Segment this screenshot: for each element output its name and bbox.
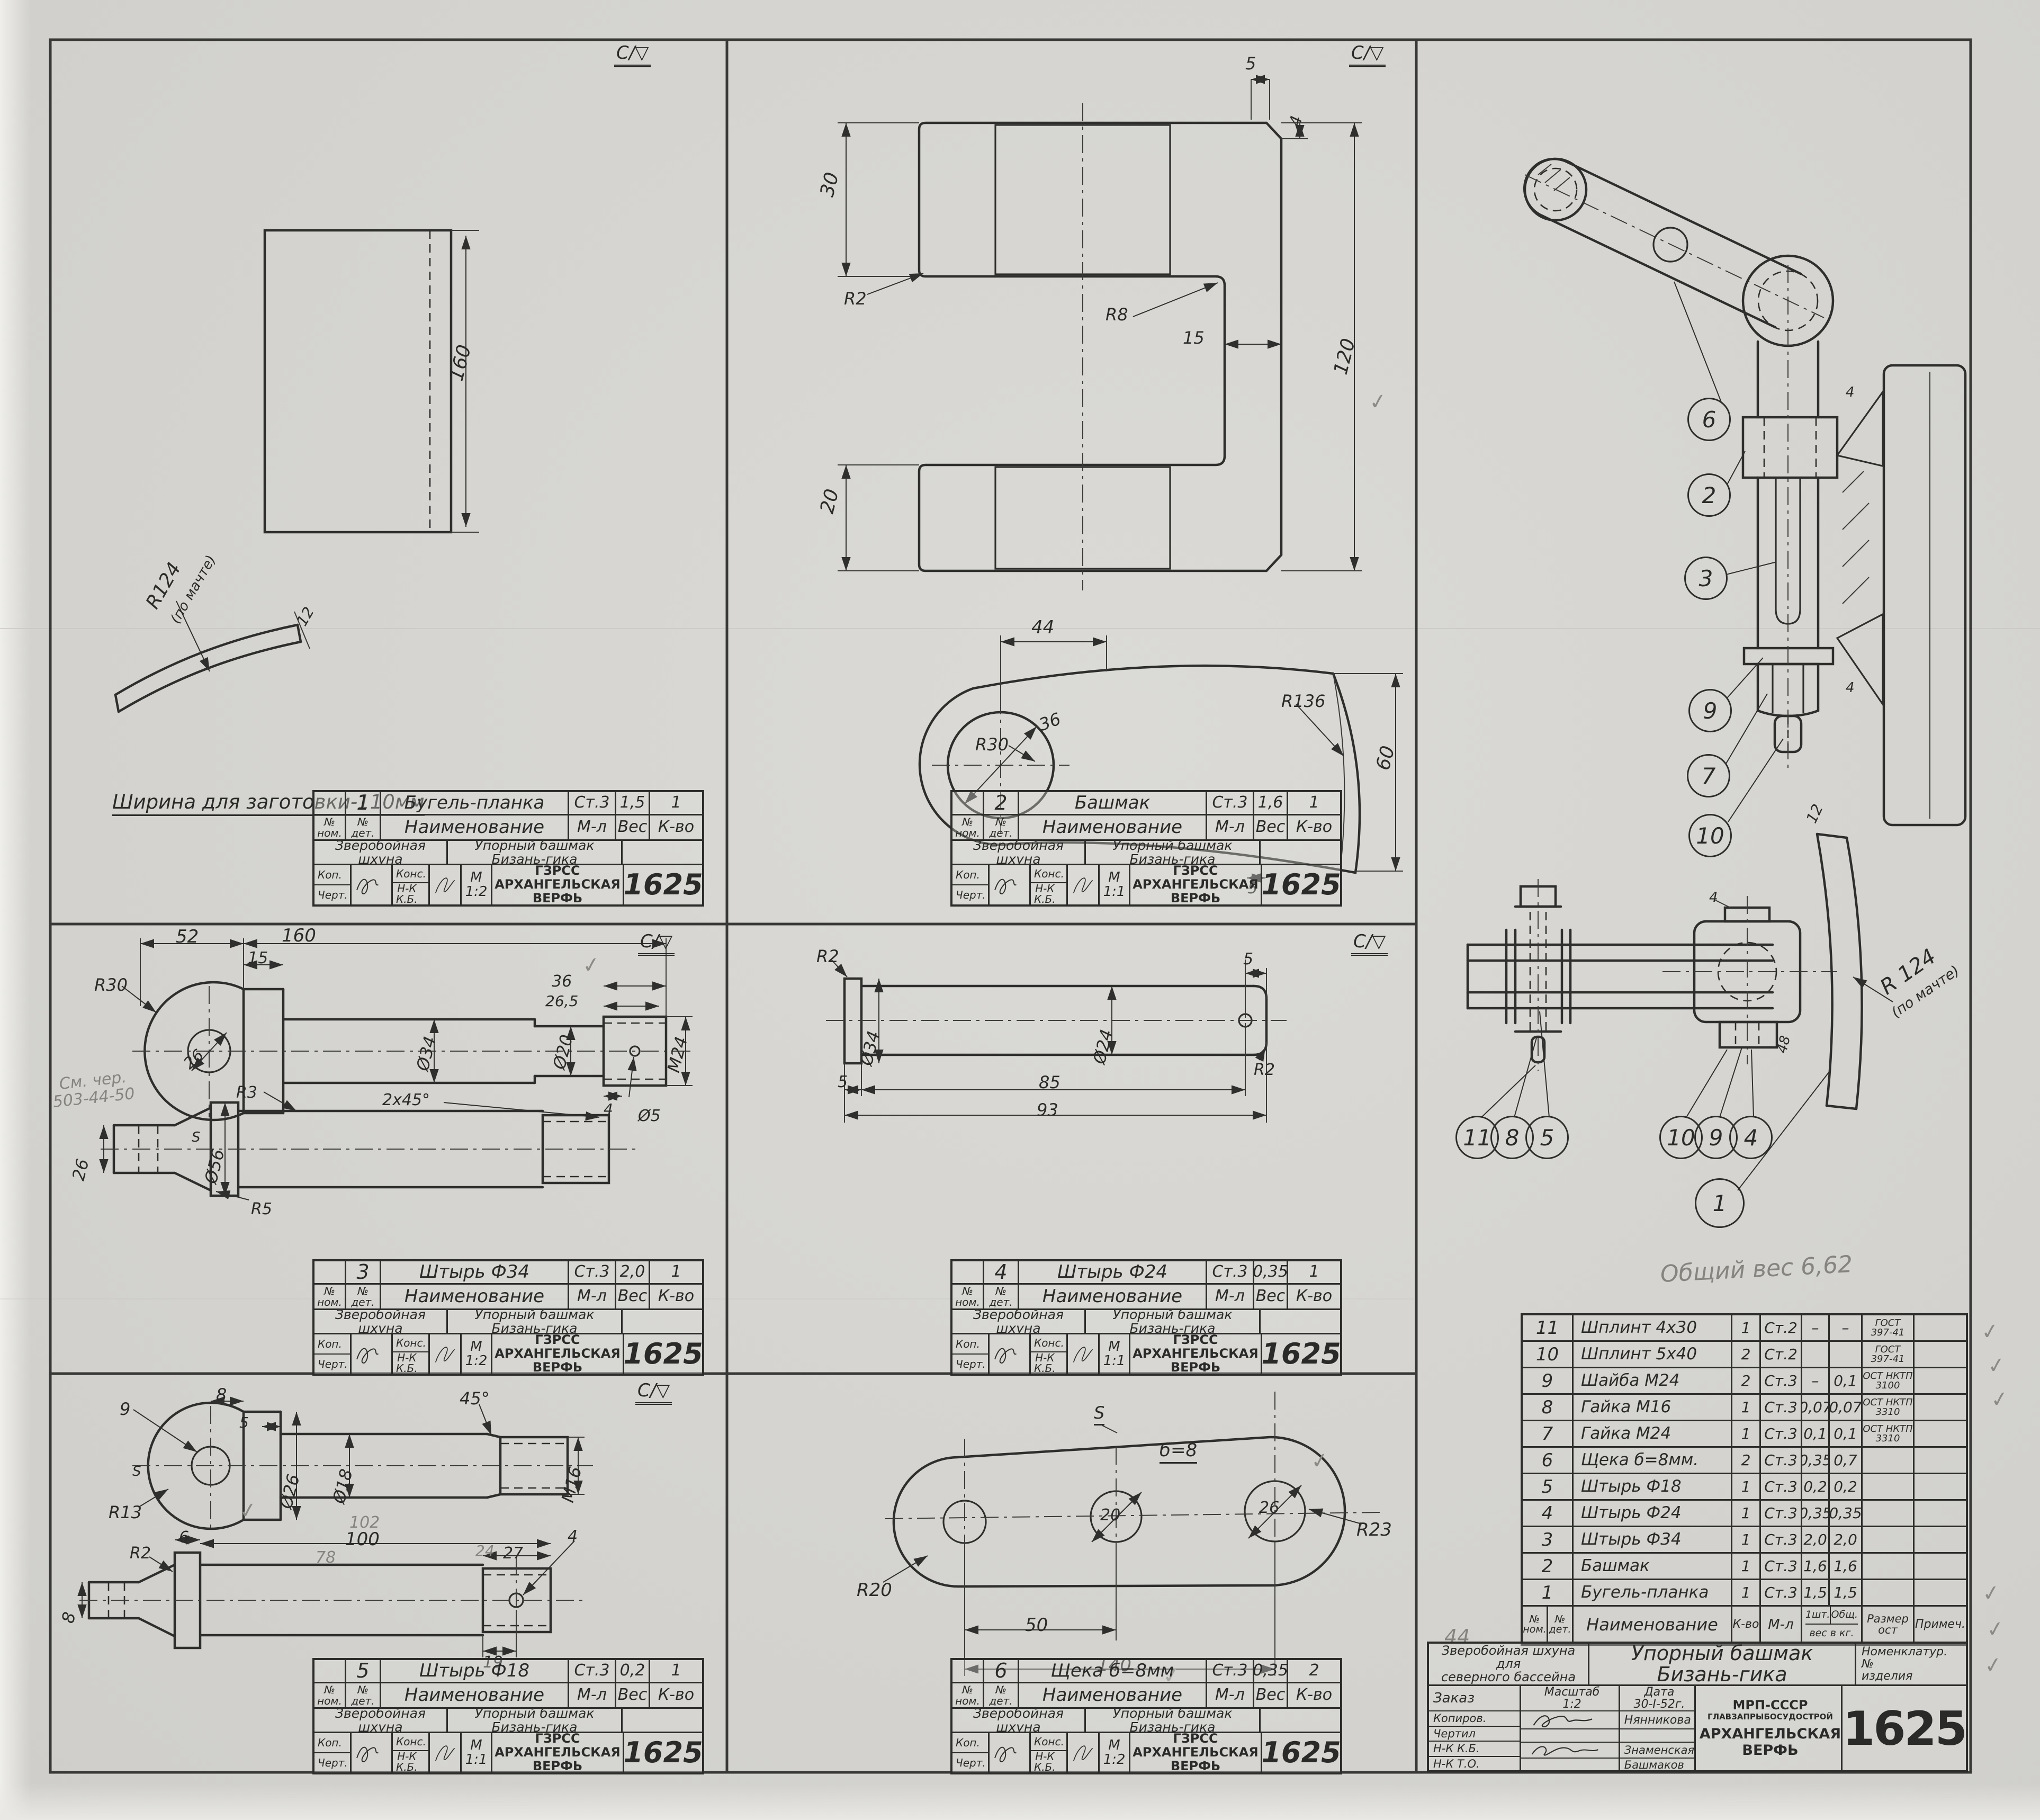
- part-name: Штырь Ф24: [1574, 1501, 1732, 1527]
- part-material: Ст.3: [1761, 1580, 1802, 1607]
- part-number: 6: [1523, 1448, 1574, 1474]
- part-number: 4: [1523, 1501, 1574, 1527]
- tb-part-number: 2: [984, 792, 1019, 815]
- kopir-signature: [1521, 1711, 1619, 1729]
- pencil-checkmark: ✓: [1986, 1352, 2007, 1379]
- part-qty: 2: [1732, 1342, 1761, 1368]
- dimension-label: R5: [251, 1201, 272, 1218]
- tb-scale: М1:1: [1100, 865, 1130, 904]
- surface-finish-mark: С/▽: [614, 42, 651, 67]
- tb-scale: М1:2: [462, 865, 492, 904]
- dimension-label: 50: [1025, 1616, 1048, 1635]
- tb-col-mat: М-л: [569, 1683, 616, 1709]
- tb-weight: 2,0: [616, 1261, 650, 1285]
- tb-firm: ГЗРСС АРХАНГЕЛЬСКАЯ ВЕРФЬ: [1130, 1334, 1262, 1374]
- tb-qty: 1: [650, 1660, 702, 1683]
- tb-col-num: № ном.: [952, 815, 984, 841]
- tb-col-det: № дет.: [984, 1683, 1019, 1709]
- nkkb-name: Знаменская: [1620, 1743, 1694, 1759]
- part-material: Ст.2: [1761, 1315, 1802, 1342]
- part-number: 7: [1523, 1421, 1574, 1448]
- tb-qty: 1: [1288, 792, 1340, 815]
- dimension-label: 4: [1846, 681, 1855, 695]
- part-weight-each: –: [1802, 1315, 1830, 1342]
- header-w2: Общ.: [1831, 1607, 1858, 1625]
- tb-scale: М1:2: [462, 1334, 492, 1374]
- panel-3-titleblock: 3 Штырь Ф34Ст.3 2,01 № ном.№ дет. Наимен…: [312, 1259, 704, 1376]
- part-number: 1: [1523, 1580, 1574, 1607]
- tb-col-det: № дет.: [984, 815, 1019, 841]
- tb-drawing-number: 1625: [624, 1334, 702, 1374]
- tb-blank: [952, 1660, 984, 1683]
- part-number: 11: [1523, 1315, 1574, 1342]
- tb-project: Зверобойная шхуна: [952, 1310, 1086, 1334]
- tb-blank2: [1261, 1709, 1340, 1733]
- tb-project: Зверобойная шхуна: [314, 1310, 448, 1334]
- part-note: [1915, 1554, 1966, 1580]
- parts-row-2: 2 Башмак 1 Ст.3 1,6 1,6: [1523, 1554, 1966, 1580]
- part-material: Ст.3: [1761, 1448, 1802, 1474]
- dimension-label: R2: [130, 1545, 151, 1562]
- part-number: 10: [1523, 1342, 1574, 1368]
- panel6-scheka-drawing: [883, 1392, 1381, 1676]
- balloon-10: 10: [1688, 814, 1732, 857]
- ministry-text: МРП-СССР: [1732, 1698, 1808, 1713]
- tb-drawing-number: 1625: [624, 865, 702, 904]
- dimension-label: 20: [1100, 1507, 1120, 1524]
- part-note: [1915, 1580, 1966, 1607]
- header-note: Примеч.: [1915, 1607, 1966, 1644]
- dimension-label: 100: [345, 1530, 380, 1549]
- header-weight-group: 1шт.Общ. вес в кг.: [1802, 1607, 1863, 1644]
- dimension-label: 85: [1039, 1074, 1061, 1092]
- part-standard: [1863, 1580, 1915, 1607]
- dimension-label: 5: [239, 1415, 249, 1430]
- dimension-label: R23: [1356, 1521, 1392, 1540]
- tb-part-number: 1: [346, 792, 381, 815]
- chertil-label: Чертил: [1429, 1727, 1520, 1742]
- tb-col-name: Наименование: [381, 1683, 569, 1709]
- tb-drawing-number: 1625: [1262, 1334, 1340, 1374]
- tb-col-qty: К-во: [650, 815, 702, 841]
- part-qty: 1: [1732, 1474, 1761, 1501]
- part-material: Ст.2: [1761, 1342, 1802, 1368]
- part-weight-each: 0,2: [1802, 1474, 1830, 1501]
- part-number: 8: [1523, 1395, 1574, 1421]
- main-tb-names: Дата 30-I-52г. Нянникова Знаменская Башм…: [1620, 1686, 1696, 1771]
- dimension-label: R30: [975, 736, 1009, 754]
- part-note: [1915, 1527, 1966, 1554]
- part-name: Гайка М16: [1574, 1395, 1732, 1421]
- tb-scale: М1:2: [1100, 1733, 1130, 1772]
- tb-col-weight: Вес: [616, 1285, 650, 1310]
- tb-material: Ст.3: [1207, 792, 1254, 815]
- scale-value: 1:2: [1562, 1698, 1581, 1710]
- dimension-label: 9: [120, 1401, 130, 1419]
- tb-weight: 0,35: [1254, 1660, 1288, 1683]
- pencil-checkmark: ✓: [1368, 389, 1389, 415]
- tb-material: Ст.3: [569, 1660, 616, 1683]
- part-qty: 2: [1732, 1448, 1761, 1474]
- tb-signature-kop: [990, 865, 1031, 904]
- tb-signature-nk: [430, 1733, 462, 1772]
- header-name: Наименование: [1574, 1607, 1732, 1644]
- parts-row-9: 9 Шайба М24 2 Ст.3 – 0,1 ОСТ НКТП 3100: [1523, 1368, 1966, 1395]
- tb-kop-chert: Коп.Черт.: [314, 1733, 352, 1772]
- tb-col-name: Наименование: [1019, 815, 1207, 841]
- part-weight-total: 1,5: [1830, 1580, 1863, 1607]
- order-label: Заказ: [1429, 1686, 1520, 1711]
- dimension-label: R8: [1106, 306, 1128, 324]
- part-standard: ОСТ НКТП 3100: [1863, 1368, 1915, 1395]
- tb-subject: Упорный башмак Бизань-гика: [448, 841, 623, 865]
- dimension-label: R2: [844, 290, 867, 308]
- tb-col-num: № ном.: [952, 1683, 984, 1709]
- dimension-label: 15: [1183, 329, 1205, 347]
- tb-kons-nk: Конс.Н-К К.Б.: [1031, 1334, 1068, 1374]
- pencil-note: 24: [475, 1543, 495, 1558]
- balloon-7: 7: [1687, 754, 1730, 797]
- glavk-text: ГЛАВЗАПРЫБОСУДОСТРОЙ: [1708, 1713, 1833, 1722]
- panel-5-titleblock: 5 Штырь Ф18Ст.3 0,21 № ном.№ дет. Наимен…: [312, 1658, 704, 1774]
- tb-kons-nk: Конс.Н-К К.Б.: [393, 865, 430, 904]
- tb-subject: Упорный башмак Бизань-гика: [1086, 1310, 1261, 1334]
- panel-4-titleblock: 4 Штырь Ф24Ст.3 0,351 № ном.№ дет. Наиме…: [950, 1259, 1342, 1376]
- tb-part-number: 5: [346, 1660, 381, 1683]
- part-note: [1915, 1368, 1966, 1395]
- panel2-bashmak-drawing: [838, 79, 1403, 878]
- nkkb-label: Н-К К.Б.: [1429, 1742, 1520, 1757]
- dimension-label: 160: [282, 927, 316, 946]
- tb-project: Зверобойная шхуна: [314, 1709, 448, 1733]
- kopir-label: Копиров.: [1429, 1711, 1520, 1727]
- surface-finish-mark: С/▽: [1351, 931, 1388, 956]
- tb-col-qty: К-во: [1288, 815, 1340, 841]
- dimension-label: 44: [1031, 618, 1054, 638]
- part-number: 5: [1523, 1474, 1574, 1501]
- part-standard: [1863, 1501, 1915, 1527]
- part-qty: 1: [1732, 1527, 1761, 1554]
- dimension-label: 6: [179, 1529, 189, 1546]
- dimension-label: R2: [816, 948, 839, 966]
- tb-col-weight: Вес: [1254, 1683, 1288, 1709]
- pencil-checkmark: ✓: [1309, 1448, 1331, 1474]
- tb-blank2: [1261, 1310, 1340, 1334]
- part-qty: 1: [1732, 1501, 1761, 1527]
- tb-col-name: Наименование: [381, 815, 569, 841]
- tb-weight: 1,5: [616, 792, 650, 815]
- shipyard-text-2: ВЕРФЬ: [1742, 1742, 1798, 1759]
- part-qty: 1: [1732, 1421, 1761, 1448]
- part-weight-total: 0,2: [1830, 1474, 1863, 1501]
- tb-signature-nk: [1068, 865, 1100, 904]
- part-standard: [1863, 1527, 1915, 1554]
- dimension-label: R13: [109, 1504, 142, 1522]
- tb-col-name: Наименование: [1019, 1683, 1207, 1709]
- tb-blank: [314, 792, 346, 815]
- dimension-label: R136: [1281, 693, 1325, 711]
- tb-col-num: № ном.: [952, 1285, 984, 1310]
- shipyard-logo: [1696, 1697, 1696, 1760]
- pencil-checkmark: ✓: [1985, 1616, 2006, 1643]
- part-name: Шайба М24: [1574, 1368, 1732, 1395]
- panel-6-titleblock: 6 Щека б=8ммСт.3 0,352 № ном.№ дет. Наим…: [950, 1658, 1342, 1774]
- part-weight-total: 0,1: [1830, 1421, 1863, 1448]
- tb-part-name: Штырь Ф34: [381, 1261, 569, 1285]
- tb-drawing-number: 1625: [624, 1733, 702, 1772]
- parts-row-7: 7 Гайка М24 1 Ст.3 0,1 0,1 ОСТ НКТП 3310: [1523, 1421, 1966, 1448]
- tb-part-number: 4: [984, 1261, 1019, 1285]
- dimension-label: 27: [503, 1545, 523, 1562]
- header-mat: М-л: [1761, 1607, 1802, 1644]
- part-name: Шплинт 5х40: [1574, 1342, 1732, 1368]
- tb-signature-kop: [990, 1334, 1031, 1374]
- part-weight-total: 0,07: [1830, 1395, 1863, 1421]
- drawing-number: 1625: [1843, 1701, 1966, 1756]
- scale-label: Масштаб: [1544, 1686, 1600, 1698]
- part-weight-total: 0,7: [1830, 1448, 1863, 1474]
- part-material: Ст.3: [1761, 1527, 1802, 1554]
- tb-kons-nk: Конс.Н-К К.Б.: [393, 1334, 430, 1374]
- tb-subject: Упорный башмак Бизань-гика: [1086, 1709, 1261, 1733]
- part-standard: [1863, 1474, 1915, 1501]
- part-weight-each: –: [1802, 1368, 1830, 1395]
- parts-row-3: 3 Штырь Ф34 1 Ст.3 2,0 2,0: [1523, 1527, 1966, 1554]
- tb-kop-chert: Коп.Черт.: [952, 865, 990, 904]
- tb-signature-nk: [1068, 1733, 1100, 1772]
- tb-col-det: № дет.: [984, 1285, 1019, 1310]
- part-material: Ст.3: [1761, 1554, 1802, 1580]
- part-standard: ОСТ НКТП 3310: [1863, 1421, 1915, 1448]
- assembly-upper-drawing: [1524, 159, 1965, 825]
- header-qty: К-во: [1732, 1607, 1761, 1644]
- tb-kons-nk: Конс.Н-К К.Б.: [393, 1733, 430, 1772]
- dimension-label: 5: [1243, 951, 1253, 968]
- dimension-label: 52: [176, 928, 199, 947]
- panel-1-titleblock: 1 Бугель-планкаСт.3 1,51 № ном.№ дет. На…: [312, 790, 704, 907]
- part-note: [1915, 1448, 1966, 1474]
- part-number: 9: [1523, 1368, 1574, 1395]
- part-weight-total: 2,0: [1830, 1527, 1863, 1554]
- parts-header-row: № ном. № дет. Наименование К-во М-л 1шт.…: [1523, 1607, 1966, 1644]
- pencil-checkmark: ✓: [1983, 1652, 2004, 1679]
- dimension-label: 26,5: [545, 993, 578, 1009]
- part-standard: ГОСТ 397-41: [1863, 1315, 1915, 1342]
- tb-project: Зверобойная шхуна: [952, 1709, 1086, 1733]
- part-number: 3: [1523, 1527, 1574, 1554]
- part-weight-each: 2,0: [1802, 1527, 1830, 1554]
- tb-part-number: 6: [984, 1660, 1019, 1683]
- part-name: Штырь Ф34: [1574, 1527, 1732, 1554]
- main-tb-nomenclature: Номенклатур. № изделия: [1856, 1644, 1966, 1684]
- tb-qty: 1: [650, 1261, 702, 1285]
- tb-blank: [314, 1660, 346, 1683]
- part-note: [1915, 1395, 1966, 1421]
- tb-firm: ГЗРСС АРХАНГЕЛЬСКАЯ ВЕРФЬ: [1130, 1733, 1262, 1772]
- tb-signature-nk: [430, 1334, 462, 1374]
- dimension-label: 4: [604, 1101, 613, 1117]
- tb-col-det: № дет.: [346, 815, 381, 841]
- dimension-label: б=8: [1160, 1441, 1197, 1464]
- parts-list-table: 11 Шплинт 4х30 1 Ст.2 – – ГОСТ 397-41 10…: [1521, 1313, 1968, 1646]
- main-tb-project: Зверобойная шхуна для северного бассейна: [1429, 1644, 1589, 1684]
- dimension-label: 36: [552, 973, 572, 990]
- tb-col-qty: К-во: [650, 1285, 702, 1310]
- nkto-label: Н-К Т.О.: [1429, 1757, 1520, 1771]
- main-tb-subject: Упорный башмак Бизань-гика: [1589, 1644, 1856, 1684]
- pencil-checkmark: ✓: [1981, 1580, 2002, 1607]
- tb-col-mat: М-л: [1207, 815, 1254, 841]
- tb-kons-nk: Конс.Н-К К.Б.: [1031, 865, 1068, 904]
- tb-col-num: № ном.: [314, 1285, 346, 1310]
- part-qty: 2: [1732, 1368, 1761, 1395]
- part-weight-total: 0,35: [1830, 1501, 1863, 1527]
- dimension-label: R30: [94, 976, 128, 994]
- part-material: Ст.3: [1761, 1395, 1802, 1421]
- dimension-label: 26: [1259, 1500, 1279, 1517]
- part-number: 2: [1523, 1554, 1574, 1580]
- header-w-sub: вес в кг.: [1809, 1625, 1854, 1643]
- tb-col-name: Наименование: [1019, 1285, 1207, 1310]
- tb-part-name: Щека б=8мм: [1019, 1660, 1207, 1683]
- parts-row-1: 1 Бугель-планка 1 Ст.3 1,5 1,5: [1523, 1580, 1966, 1607]
- header-no-nom: № ном.: [1523, 1607, 1548, 1644]
- balloon-1: 1: [1695, 1178, 1745, 1228]
- pencil-note: 78: [316, 1549, 336, 1566]
- part-name: Щека б=8мм.: [1574, 1448, 1732, 1474]
- surface-finish-mark: С/▽: [635, 1380, 672, 1405]
- pencil-checkmark: ✓: [1980, 1319, 2001, 1345]
- tb-subject: Упорный башмак Бизань-гика: [448, 1310, 623, 1334]
- tb-firm: ГЗРСС АРХАНГЕЛЬСКАЯ ВЕРФЬ: [492, 1733, 624, 1772]
- parts-row-8: 8 Гайка М16 1 Ст.3 0,07 0,07 ОСТ НКТП 33…: [1523, 1395, 1966, 1421]
- parts-row-5: 5 Штырь Ф18 1 Ст.3 0,2 0,2: [1523, 1474, 1966, 1501]
- panel4-shtyr24-drawing: [826, 960, 1287, 1123]
- tb-blank: [952, 792, 984, 815]
- balloon-5: 5: [1525, 1116, 1569, 1159]
- tb-weight: 0,35: [1254, 1261, 1288, 1285]
- part-name: Бугель-планка: [1574, 1580, 1732, 1607]
- part-note: [1915, 1501, 1966, 1527]
- parts-row-4: 4 Штырь Ф24 1 Ст.3 0,35 0,35: [1523, 1501, 1966, 1527]
- kopir-name: Нянникова: [1620, 1711, 1694, 1729]
- nkkb-signature: [1521, 1743, 1619, 1759]
- tb-kop-chert: Коп.Черт.: [314, 1334, 352, 1374]
- part-weight-each: 1,6: [1802, 1554, 1830, 1580]
- tb-weight: 0,2: [616, 1660, 650, 1683]
- balloon-3: 3: [1684, 557, 1728, 600]
- dimension-label: 45°: [460, 1390, 490, 1408]
- tb-project: Зверобойная шхуна: [314, 841, 448, 865]
- tb-project: Зверобойная шхуна: [952, 841, 1086, 865]
- header-w1: 1шт.: [1805, 1607, 1831, 1625]
- tb-kop-chert: Коп.Черт.: [314, 865, 352, 904]
- tb-col-weight: Вес: [616, 815, 650, 841]
- part-qty: 1: [1732, 1580, 1761, 1607]
- dimension-label: 5: [838, 1074, 848, 1091]
- part-note: [1915, 1342, 1966, 1368]
- dimension-label: 4: [1846, 385, 1855, 400]
- tb-qty: 1: [1288, 1261, 1340, 1285]
- panel1-bugel-planka-drawing: [115, 230, 479, 712]
- tb-col-num: № ном.: [314, 1683, 346, 1709]
- part-note: [1915, 1474, 1966, 1501]
- balloon-2: 2: [1687, 473, 1731, 517]
- tb-blank2: [623, 1310, 702, 1334]
- tb-firm: ГЗРСС АРХАНГЕЛЬСКАЯ ВЕРФЬ: [492, 1334, 624, 1374]
- part-name: Гайка М24: [1574, 1421, 1732, 1448]
- dimension-label: 93: [1037, 1101, 1058, 1119]
- tb-qty: 2: [1288, 1660, 1340, 1683]
- balloon-9: 9: [1688, 689, 1732, 732]
- tb-col-mat: М-л: [569, 1285, 616, 1310]
- tb-kop-chert: Коп.Черт.: [952, 1334, 990, 1374]
- part-name: Штырь Ф18: [1574, 1474, 1732, 1501]
- shipyard-text-1: АРХАНГЕЛЬСКАЯ: [1700, 1726, 1841, 1742]
- tb-signature-kop: [990, 1733, 1031, 1772]
- tb-col-mat: М-л: [569, 815, 616, 841]
- tb-blank2: [623, 1709, 702, 1733]
- tb-col-qty: К-во: [1288, 1683, 1340, 1709]
- tb-drawing-number: 1625: [1262, 865, 1340, 904]
- main-tb-roles: Заказ Копиров. Чертил Н-К К.Б. Н-К Т.О.: [1429, 1686, 1521, 1771]
- part-weight-total: [1830, 1342, 1863, 1368]
- part-weight-total: –: [1830, 1315, 1863, 1342]
- part-name: Башмак: [1574, 1554, 1732, 1580]
- tb-col-qty: К-во: [650, 1683, 702, 1709]
- dimension-label: 4: [1709, 891, 1718, 905]
- tb-material: Ст.3: [569, 792, 616, 815]
- main-tb-org: МРП-СССР ГЛАВЗАПРЫБОСУДОСТРОЙ АРХАНГЕЛЬС…: [1696, 1686, 1843, 1771]
- part-qty: 1: [1732, 1315, 1761, 1342]
- dimension-label: S: [192, 1131, 201, 1145]
- tb-subject: Упорный башмак Бизань-гика: [1086, 841, 1261, 865]
- header-size: Размер ост: [1863, 1607, 1915, 1644]
- part-weight-total: 1,6: [1830, 1554, 1863, 1580]
- part-material: Ст.3: [1761, 1474, 1802, 1501]
- tb-col-weight: Вес: [616, 1683, 650, 1709]
- part-standard: [1863, 1448, 1915, 1474]
- tb-col-weight: Вес: [1254, 815, 1288, 841]
- panel5-shtyr18-drawing: [79, 1401, 593, 1657]
- parts-row-6: 6 Щека б=8мм. 2 Ст.3 0,35 0,7: [1523, 1448, 1966, 1474]
- surface-finish-mark: С/▽: [638, 931, 675, 956]
- pencil-checkmark: ✓: [238, 1498, 259, 1524]
- dimension-label: R2: [1254, 1062, 1275, 1079]
- tb-signature-nk: [430, 865, 462, 904]
- tb-subject: Упорный башмак Бизань-гика: [448, 1709, 623, 1733]
- date-label: Дата: [1644, 1686, 1674, 1698]
- balloon-6: 6: [1687, 398, 1731, 441]
- dimension-label: R20: [857, 1581, 892, 1600]
- part-material: Ст.3: [1761, 1421, 1802, 1448]
- dimension-label: S: [132, 1465, 141, 1479]
- nkto-name: Башмаков: [1620, 1759, 1694, 1771]
- tb-drawing-number: 1625: [1262, 1733, 1340, 1772]
- tb-blank2: [623, 841, 702, 865]
- tb-col-det: № дет.: [346, 1285, 381, 1310]
- part-weight-each: 0,1: [1802, 1421, 1830, 1448]
- tb-signature-kop: [352, 1733, 393, 1772]
- tb-col-name: Наименование: [381, 1285, 569, 1310]
- tb-part-number: 3: [346, 1261, 381, 1285]
- tb-blank2: [1261, 841, 1340, 865]
- tb-scale: М1:1: [462, 1733, 492, 1772]
- pencil-note: 102: [349, 1514, 380, 1531]
- part-note: [1915, 1315, 1966, 1342]
- tb-blank: [314, 1261, 346, 1285]
- tb-col-num: № ном.: [314, 815, 346, 841]
